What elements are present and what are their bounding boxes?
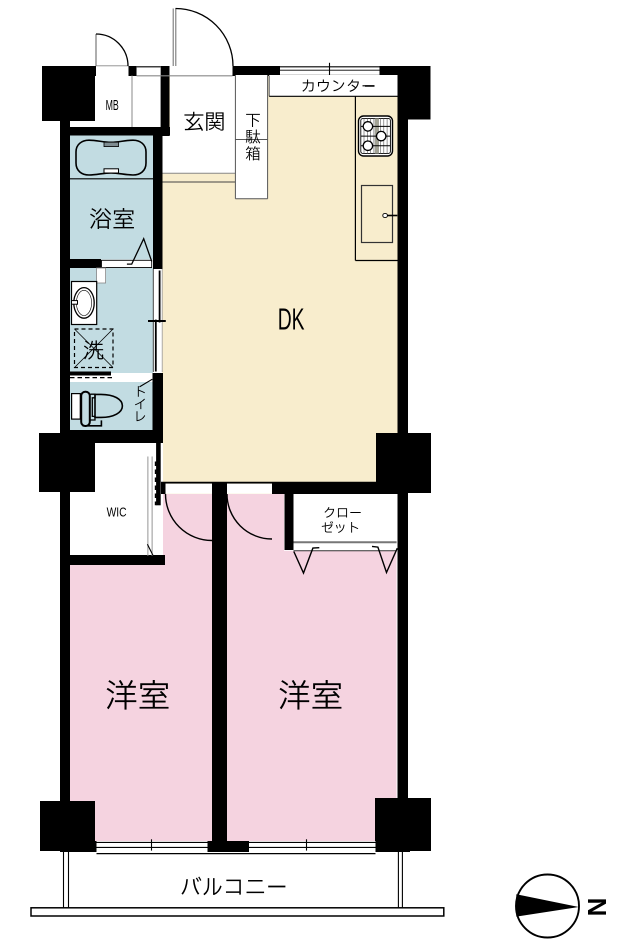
svg-text:WIC: WIC xyxy=(107,504,127,519)
svg-text:MB: MB xyxy=(106,98,119,114)
svg-text:DK: DK xyxy=(278,302,305,337)
svg-text:N: N xyxy=(582,898,612,917)
